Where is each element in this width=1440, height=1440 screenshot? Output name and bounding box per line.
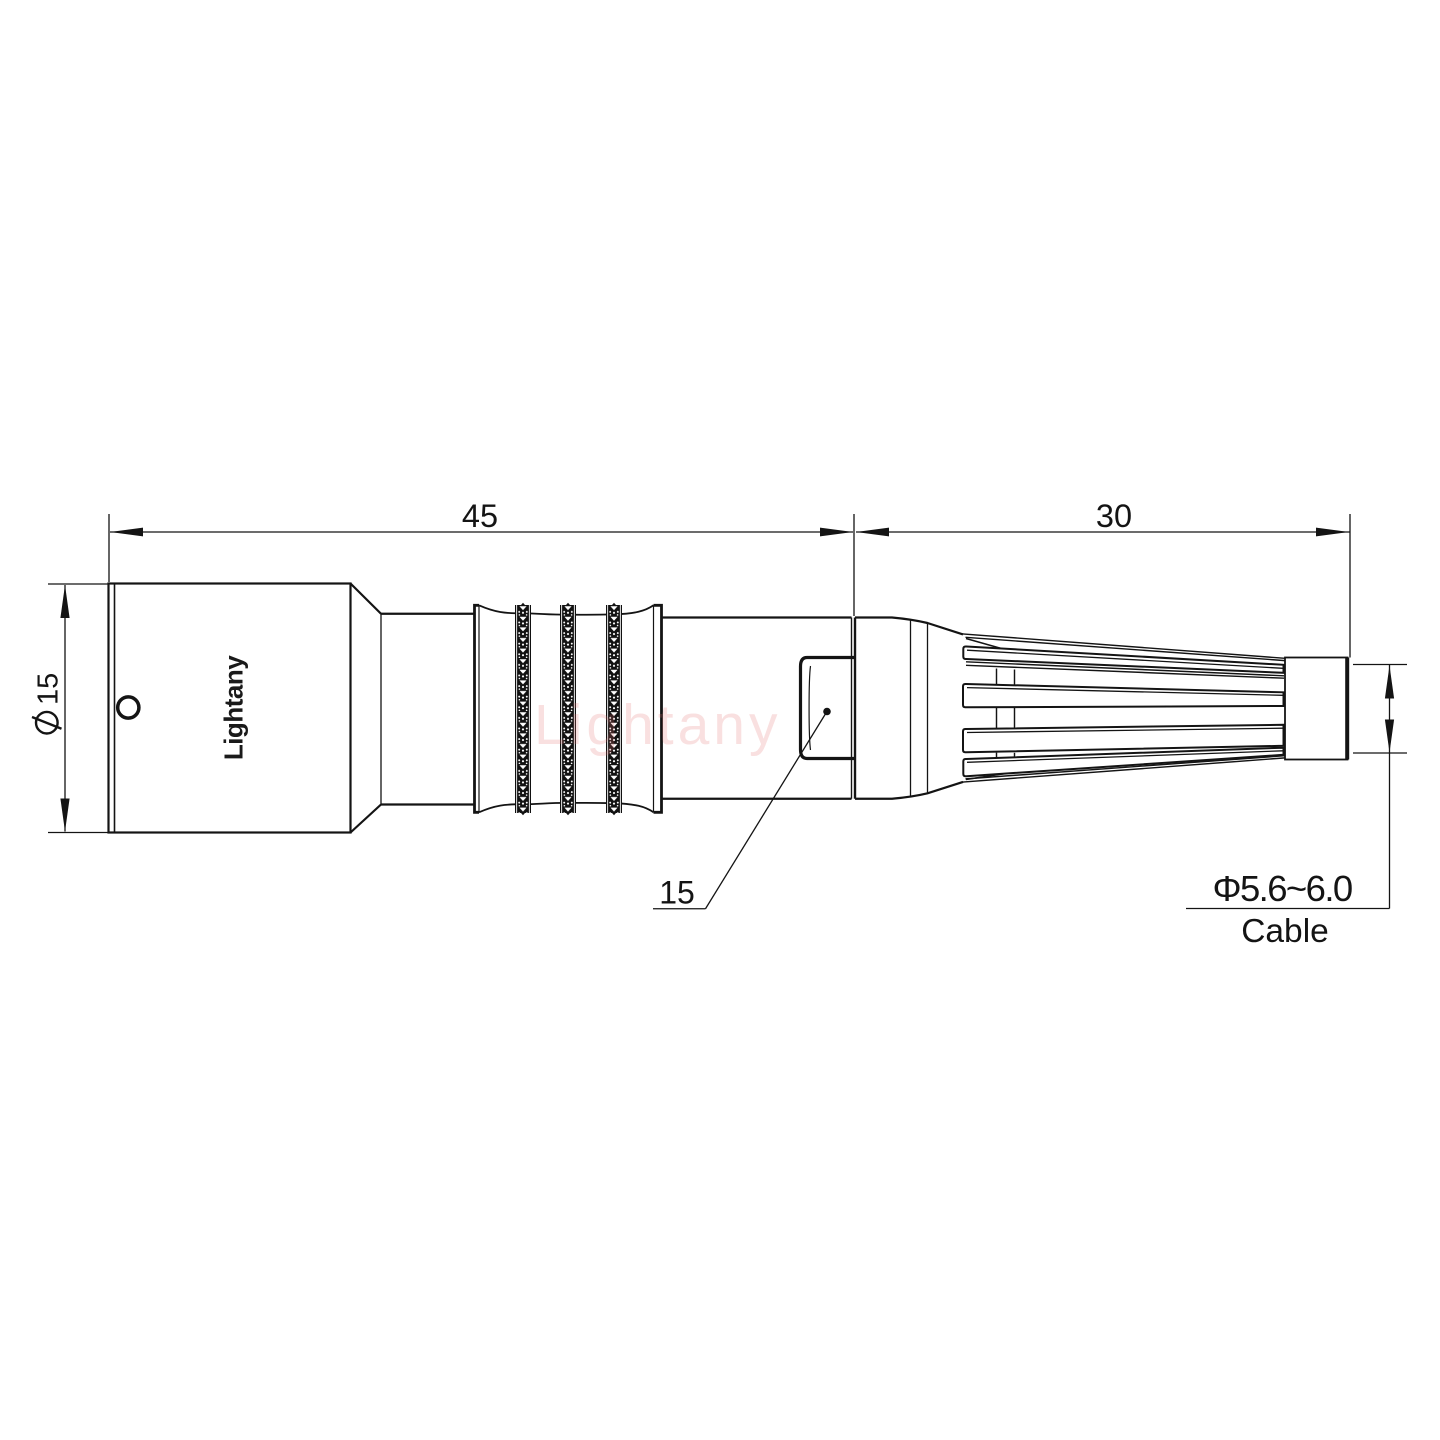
- svg-text:15: 15: [32, 673, 64, 705]
- svg-text:Cable: Cable: [1241, 913, 1329, 950]
- svg-text:Lightany: Lightany: [534, 693, 782, 757]
- svg-text:15: 15: [659, 875, 695, 911]
- svg-text:30: 30: [1096, 498, 1132, 534]
- svg-text:45: 45: [462, 498, 498, 534]
- svg-text:Lightany: Lightany: [219, 655, 249, 760]
- svg-text:Φ5.6~6.0: Φ5.6~6.0: [1212, 868, 1351, 909]
